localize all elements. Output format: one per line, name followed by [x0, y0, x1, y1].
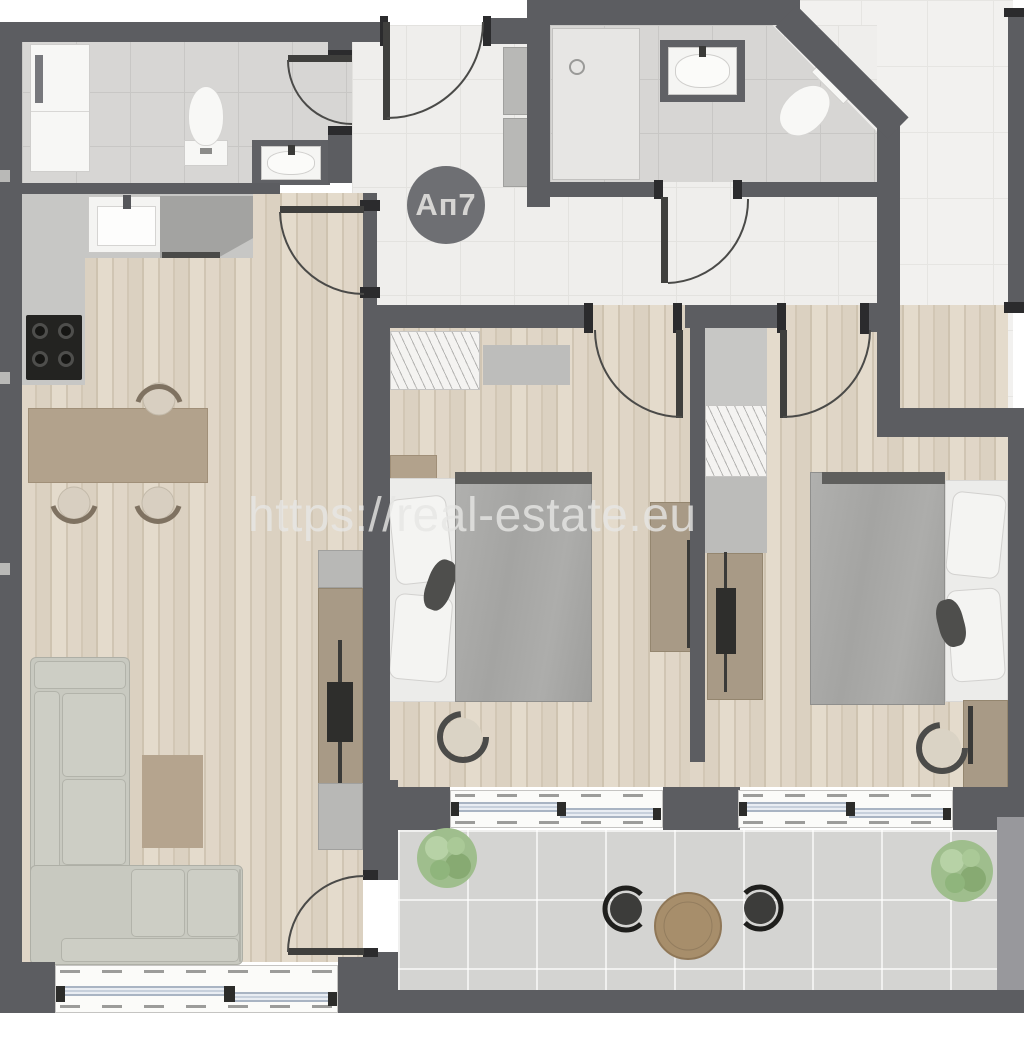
bed1-edge	[455, 472, 592, 484]
cooktop-icon	[26, 315, 82, 380]
media-cabinet-bottom	[318, 783, 363, 850]
shower-column-icon	[35, 55, 43, 103]
door-jamb	[483, 16, 491, 46]
bed2-duvet	[810, 472, 945, 705]
unit-divider	[31, 111, 89, 112]
wall-bottom-left-corner	[22, 962, 55, 1013]
door-jamb	[363, 948, 378, 957]
wall-bath1-east-low	[328, 132, 352, 183]
wall-cap	[1004, 302, 1024, 313]
wall-bath2-north	[550, 0, 800, 25]
wall-terrace-south	[398, 990, 1024, 1013]
wall-corridor-west	[877, 123, 900, 410]
bedroom1-rug	[483, 345, 570, 385]
nook-mat	[705, 477, 767, 553]
wall-joint	[0, 170, 10, 182]
floor-plan: Ап7 https://real-estate.eu	[0, 0, 1024, 1044]
wall-joint	[0, 563, 10, 575]
entry-closet-upper	[503, 47, 528, 115]
sofa-horizontal-section	[30, 865, 243, 965]
entry-closet-lower	[503, 118, 528, 187]
door-jamb	[733, 180, 742, 199]
living-room-window	[55, 965, 338, 1013]
wall-corridor-south	[877, 408, 1024, 437]
wall-window-block-1	[398, 787, 450, 830]
terrace-floor	[398, 830, 1024, 990]
wall-bedroom2-east	[1008, 437, 1024, 787]
bathroom1-vanity	[252, 140, 330, 185]
door-jamb	[363, 870, 378, 880]
wall-bath2-south-left	[550, 182, 662, 197]
shower2-tray	[552, 28, 640, 180]
bed2-edge	[822, 472, 945, 484]
door-jamb	[328, 126, 352, 135]
door-jamb	[860, 303, 869, 334]
kitchen-cabinet-handle	[162, 252, 220, 258]
wall-top	[0, 22, 382, 42]
door-jamb	[328, 50, 352, 59]
tv-icon	[716, 588, 736, 654]
dining-table	[28, 408, 208, 483]
wall-window-block-2	[663, 787, 740, 830]
wall-cap	[1004, 8, 1024, 17]
desk-object	[968, 706, 973, 764]
faucet-icon	[123, 195, 131, 209]
door-jamb	[380, 16, 388, 46]
wardrobe-bedroom1	[390, 331, 480, 390]
wall-bath2-west	[527, 0, 550, 207]
bathroom2-vanity	[660, 40, 745, 102]
toilet1-button	[200, 148, 212, 154]
bedroom2-window	[738, 790, 953, 828]
door-jamb	[777, 303, 786, 333]
wall-bath2-south-right	[733, 182, 877, 197]
wall-right-top	[1008, 8, 1024, 313]
wall-window-right-block	[338, 957, 398, 1013]
wall-joint	[0, 372, 10, 384]
wall-hall-band-1	[377, 305, 590, 328]
faucet-icon	[288, 145, 295, 155]
kitchen-sink	[88, 196, 165, 253]
bedroom1-window	[450, 790, 663, 828]
media-cabinet-top	[318, 550, 363, 588]
tv-icon	[327, 682, 353, 742]
bed2-pillow-area	[945, 480, 1008, 702]
unit-badge: Ап7	[407, 166, 485, 244]
shower-washer-unit	[30, 44, 90, 172]
nook-floor	[705, 318, 767, 405]
wall-terrace-west-upper	[377, 780, 398, 880]
living-room-rug	[142, 755, 203, 848]
shower-head-icon	[569, 59, 585, 75]
unit-badge-label: Ап7	[415, 187, 476, 223]
toilet1-bowl	[188, 86, 224, 146]
wall-terrace-east	[997, 817, 1024, 1010]
door-jamb	[673, 303, 682, 333]
faucet-icon	[699, 46, 706, 57]
wardrobe-bedroom2	[705, 405, 767, 477]
door-jamb	[584, 303, 593, 333]
door-jamb	[360, 287, 380, 298]
door-jamb	[360, 200, 380, 211]
watermark: https://real-estate.eu	[248, 488, 697, 543]
wall-bath1-kitchen	[22, 183, 280, 194]
door-jamb	[654, 180, 663, 199]
